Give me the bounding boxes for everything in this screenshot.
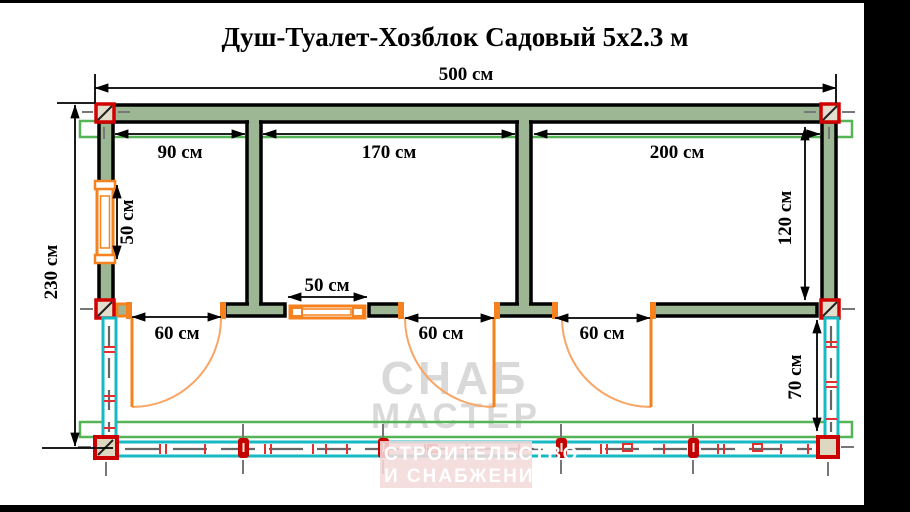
label-total-width: 500 см [439,64,494,85]
partition-1-stem [247,122,261,305]
watermark-tagline-line1: СТРОИТЕЛЬСТВО [384,444,579,465]
wall-left-lower [99,259,113,302]
label-room3-width: 200 см [650,142,705,163]
label-side-window: 50 см [117,199,138,244]
watermark-tagline-line2: И СНАБЖЕНИЕ [384,466,549,487]
wall-bottom-right-segment [654,304,817,316]
label-door1: 60 см [154,323,199,344]
window-front-cap-right [353,308,363,316]
watermark-brand: СНАБ МАСТЕР [371,352,541,436]
label-front-window: 50 см [304,275,349,296]
wall-left-upper [99,122,113,183]
window-left [95,181,115,263]
wall-top [99,105,835,122]
window-left-cap-bottom [95,255,115,263]
floor-plan-page: СНАБ МАСТЕР [0,0,910,512]
label-room2-width: 170 см [362,142,417,163]
window-front-cap-left [292,308,302,316]
letterbox-bottom [0,505,910,512]
floor-plan-drawing: СНАБ МАСТЕР [0,0,910,512]
window-front-glazing [302,309,351,315]
watermark-tagline: СТРОИТЕЛЬСТВО И СНАБЖЕНИЕ [380,441,579,488]
window-left-glazing [101,196,110,248]
page-title: Душ-Туалет-Хозблок Садовый 5х2.3 м [222,22,689,52]
wall-right [822,122,836,303]
label-porch-depth: 70 см [785,354,806,399]
wall-bottom-mid-block [369,304,401,316]
watermark-brand-line2: МАСТЕР [371,397,541,436]
letterbox-right [864,0,910,512]
label-door2: 60 см [418,323,463,344]
label-room3-depth: 120 см [775,191,796,246]
letterbox-top [0,0,910,3]
label-total-depth: 230 см [41,245,62,300]
label-room1-width: 90 см [157,142,202,163]
window-front [290,306,365,318]
label-door3: 60 см [579,323,624,344]
window-left-cap-top [95,181,115,189]
porch-post-corner-right [818,437,838,457]
partition-2-stem [517,122,531,305]
